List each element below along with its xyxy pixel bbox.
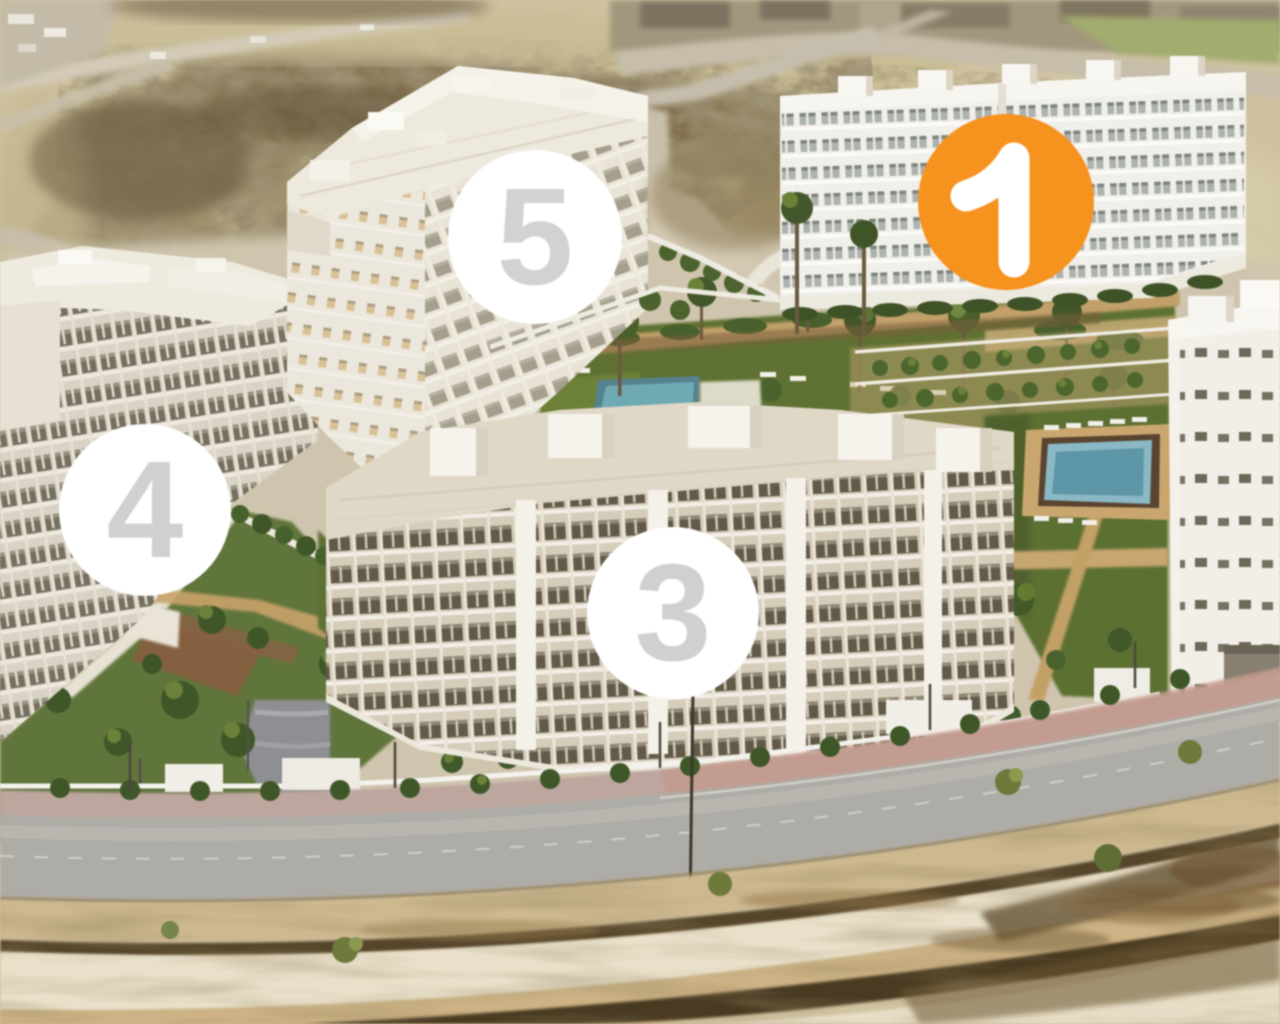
svg-text:3: 3 — [635, 536, 712, 690]
svg-text:5: 5 — [497, 160, 574, 314]
svg-text:4: 4 — [107, 433, 184, 587]
